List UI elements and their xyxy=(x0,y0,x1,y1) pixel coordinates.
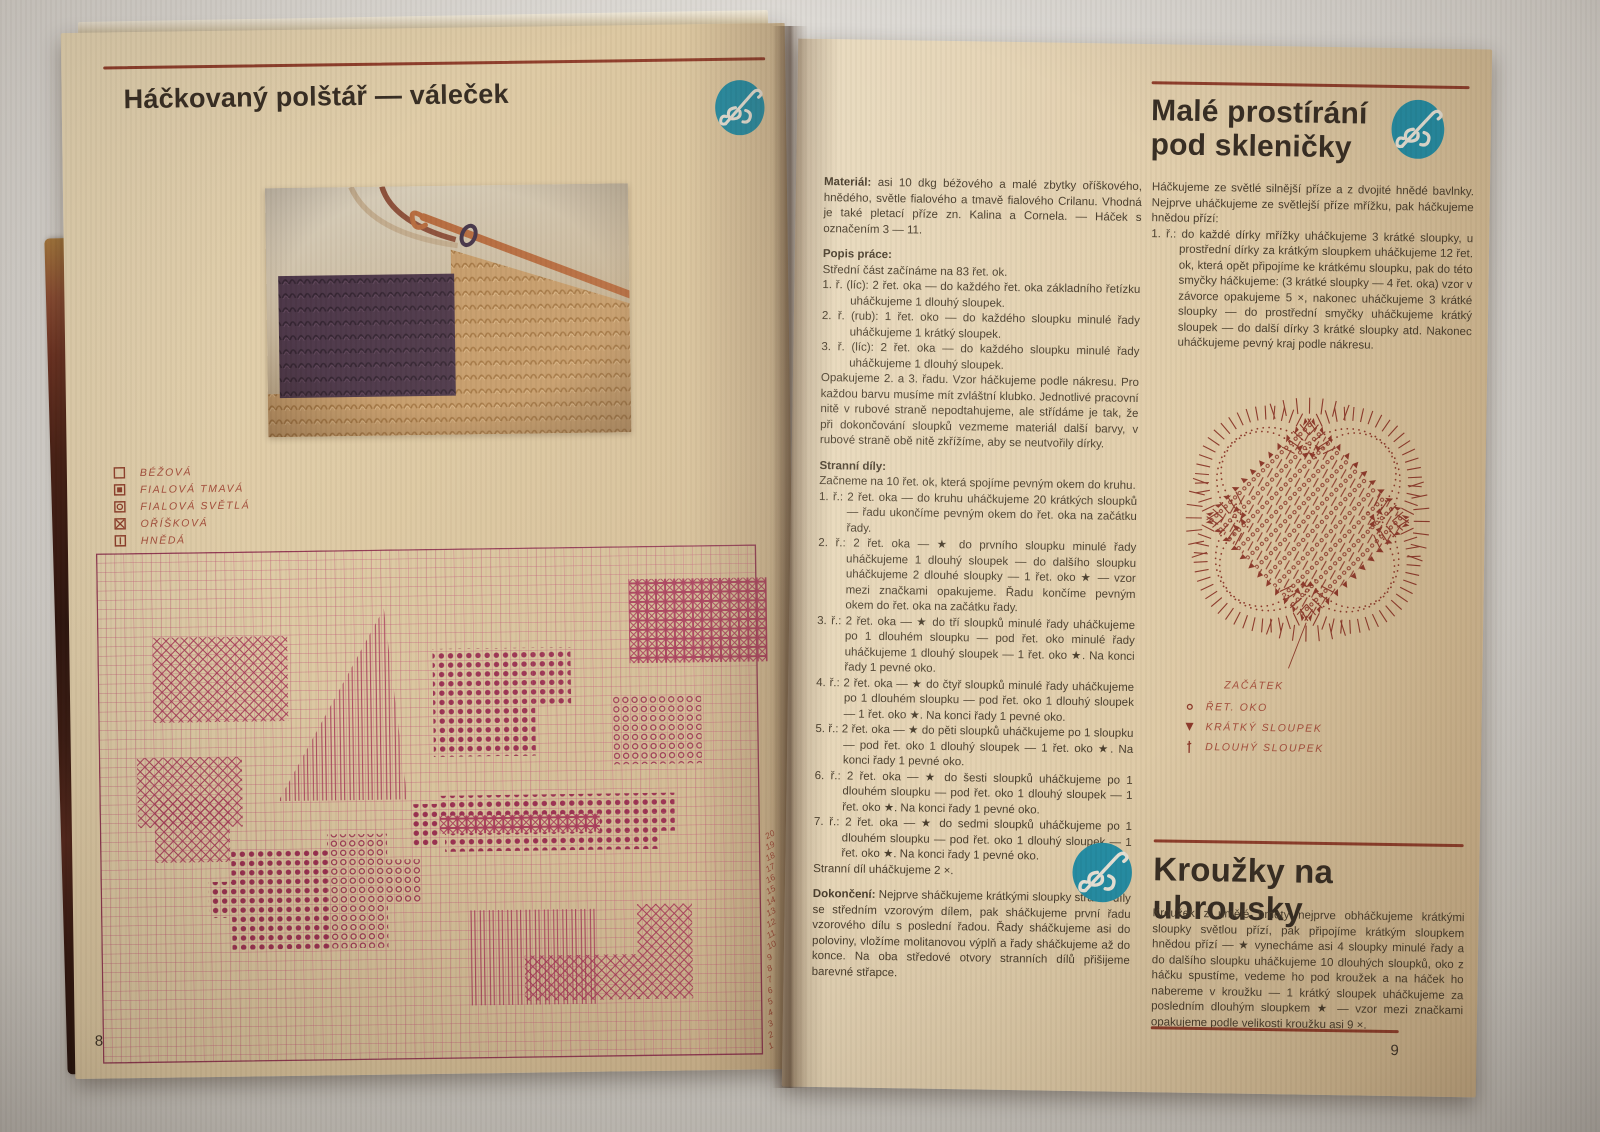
top-rule-right xyxy=(1152,81,1470,89)
magazine-logo-icon xyxy=(710,78,769,137)
color-legend: BÉŽOVÁ FIALOVÁ TMAVÁ FIALOVÁ SVĚTLÁ OŘÍŠ… xyxy=(113,463,251,550)
materials-paragraph: Materiál: asi 10 dkg béžového a malé zby… xyxy=(823,175,1142,242)
crochet-diagram xyxy=(1144,362,1471,689)
legend-symbol-empty-square xyxy=(113,466,126,479)
stranni-item: 6. ř.: 2 řet. oka — ★ do šesti sloupků u… xyxy=(814,768,1133,819)
single-crochet-icon xyxy=(1183,721,1195,733)
legend-item: BÉŽOVÁ xyxy=(113,463,250,482)
legend-label: FIALOVÁ SVĚTLÁ xyxy=(140,499,250,513)
legend-item: OŘÍŠKOVÁ xyxy=(113,514,250,533)
stranni-item: 1. ř.: 2 řet. oka — do kruhu uháčkujeme … xyxy=(818,489,1137,540)
legend-label: FIALOVÁ TMAVÁ xyxy=(140,482,244,495)
page-number-right: 9 xyxy=(1390,1042,1399,1059)
legend-symbol-bar-square xyxy=(114,534,127,547)
diagram-legend-label: ŘET. OKO xyxy=(1206,701,1268,714)
diagram-legend-label: KRÁTKÝ SLOUPEK xyxy=(1205,721,1322,735)
diagram-legend-label: DLOUHÝ SLOUPEK xyxy=(1205,741,1324,755)
magazine-photo-scene: Háčkovaný polštář — váleček xyxy=(0,0,1600,1132)
grid-row-label: 5 xyxy=(766,996,775,1007)
legend-label: HNĚDÁ xyxy=(141,534,186,547)
crochet-diagram-svg xyxy=(1144,362,1471,689)
grid-row-label: 10 xyxy=(765,938,778,951)
diagram-legend-item: DLOUHÝ SLOUPEK xyxy=(1183,737,1324,759)
popis-outro: Opakujeme 2. a 3. řadu. Vzor háčkujeme p… xyxy=(820,371,1139,453)
magazine-page-left: Háčkovaný polštář — váleček xyxy=(61,23,800,1079)
grid-row-label: 7 xyxy=(765,974,774,985)
stranni-item: 2. ř.: 2 řet. oka — ★ do prvního sloupku… xyxy=(817,536,1136,618)
popis-item: 3. ř. (líc): 2 řet. oka — do každého slo… xyxy=(821,340,1139,376)
legend-symbol-circle-square xyxy=(113,500,126,513)
legend-item: HNĚDÁ xyxy=(114,531,251,550)
popis-item: 1. ř. (líc): 2 řet. oka — do každého řet… xyxy=(822,278,1140,314)
legend-symbol-cross-square xyxy=(114,517,127,530)
text-column-right: Háčkujeme ze světlé silnější příze a z d… xyxy=(1149,180,1474,356)
diagram-start-label: ZAČÁTEK xyxy=(1224,679,1284,692)
article-item: 1. ř.: do každé dírky mřížky uháčkujeme … xyxy=(1149,227,1473,356)
crochet-photo xyxy=(265,183,631,437)
chain-stitch-icon xyxy=(1184,701,1196,713)
diagram-legend-item: ŘET. OKO xyxy=(1184,697,1325,719)
magazine-logo-icon xyxy=(1069,839,1136,906)
grid-row-label: 8 xyxy=(765,962,774,973)
section2-paragraph: Kroužek z umělé hmoty nejprve obháčkujem… xyxy=(1151,906,1465,1035)
legend-label: OŘÍŠKOVÁ xyxy=(141,517,209,530)
article-title-line2: pod skleničky xyxy=(1150,128,1367,165)
grid-row-label: 3 xyxy=(766,1018,775,1029)
top-rule-left xyxy=(103,57,765,69)
stranni-item: 5. ř.: 2 řet. oka — ★ do pěti sloupků uh… xyxy=(815,722,1134,773)
materials-text: asi 10 dkg béžového a malé zbytky oříško… xyxy=(823,177,1142,236)
finishing-lead: Dokončení: xyxy=(813,888,876,901)
page-title-left: Háčkovaný polštář — váleček xyxy=(123,79,509,115)
double-crochet-icon xyxy=(1183,740,1195,754)
legend-item: FIALOVÁ TMAVÁ xyxy=(113,480,250,499)
grid-row-label: 4 xyxy=(766,1007,775,1018)
magazine-page-right: Materiál: asi 10 dkg béžového a malé zby… xyxy=(782,39,1492,1098)
diagram-legend: ŘET. OKO KRÁTKÝ SLOUPEK DLOUHÝ SLOUPEK xyxy=(1183,697,1325,759)
legend-item: FIALOVÁ SVĚTLÁ xyxy=(113,497,250,516)
grid-row-label: 6 xyxy=(765,985,774,996)
magazine-logo-icon xyxy=(1386,98,1449,161)
grid-row-label: 1 xyxy=(766,1040,775,1051)
stranni-item: 4. ř.: 2 řet. oka — ★ do čtyř sloupků mi… xyxy=(816,675,1135,726)
grid-row-label: 2 xyxy=(765,1029,775,1041)
legend-label: BÉŽOVÁ xyxy=(140,466,192,479)
stranni-item: 3. ř.: 2 řet. oka — ★ do tří sloupků min… xyxy=(816,613,1135,680)
article-intro: Háčkujeme ze světlé silnější příze a z d… xyxy=(1151,180,1474,232)
pattern-grid-svg: 2019181716151413121110987654321 xyxy=(96,544,797,1068)
materials-lead: Materiál: xyxy=(824,176,871,189)
section2-top-rule xyxy=(1154,839,1464,846)
page-number-left: 8 xyxy=(95,1033,104,1050)
pattern-grid-chart: 2019181716151413121110987654321 xyxy=(96,544,797,1068)
grid-row-label: 9 xyxy=(765,951,774,962)
article-title-line1: Malé prostírání xyxy=(1151,94,1368,131)
popis-item: 2. ř. (rub): 1 řet. oko — do každého slo… xyxy=(822,309,1140,345)
legend-symbol-filled-square xyxy=(113,483,126,496)
diagram-legend-item: KRÁTKÝ SLOUPEK xyxy=(1183,717,1324,739)
article-title: Malé prostírání pod skleničky xyxy=(1150,94,1367,165)
